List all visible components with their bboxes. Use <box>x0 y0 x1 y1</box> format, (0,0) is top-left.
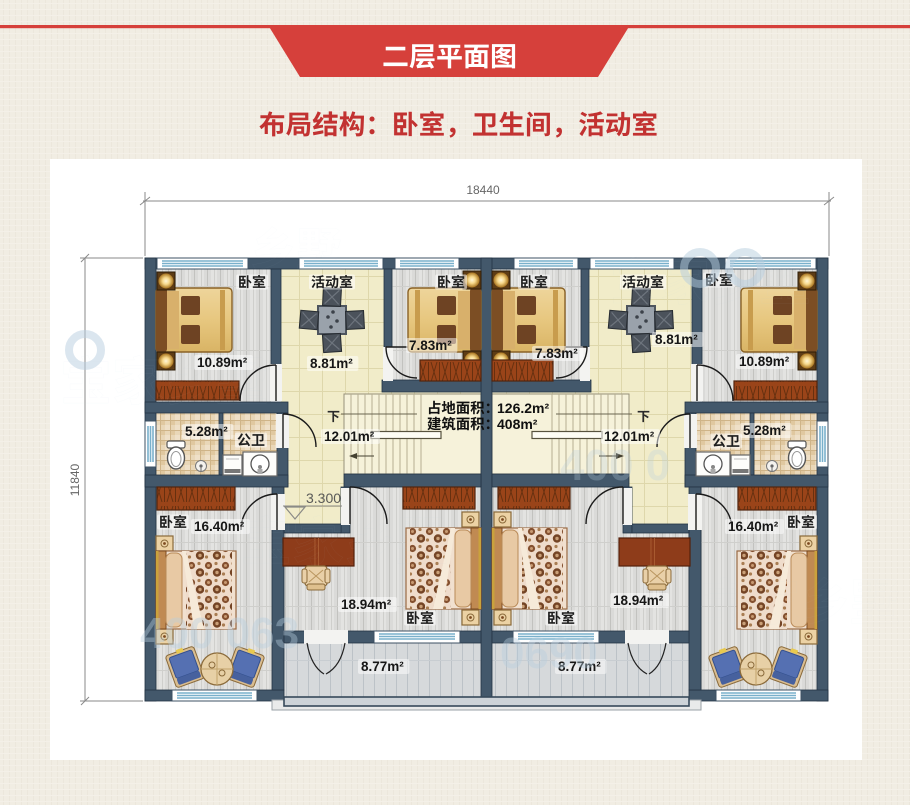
svg-text:8.81m²: 8.81m² <box>655 332 698 347</box>
svg-text:7.83m²: 7.83m² <box>409 338 452 353</box>
svg-text:0690: 0690 <box>500 629 598 678</box>
svg-text:408m²: 408m² <box>497 416 538 432</box>
svg-text:400 063: 400 063 <box>140 609 299 658</box>
svg-text:10.89m²: 10.89m² <box>197 355 248 370</box>
svg-text:5.28m²: 5.28m² <box>185 424 228 439</box>
svg-text:8.81m²: 8.81m² <box>310 356 353 371</box>
svg-text:16.40m²: 16.40m² <box>728 519 779 534</box>
svg-text:18440: 18440 <box>466 183 500 197</box>
svg-text:18.94m²: 18.94m² <box>341 597 392 612</box>
svg-text:7.83m²: 7.83m² <box>535 346 578 361</box>
svg-text:12.01m²: 12.01m² <box>324 429 375 444</box>
svg-text:8.77m²: 8.77m² <box>361 659 404 674</box>
svg-text:126.2m²: 126.2m² <box>497 400 549 416</box>
svg-text:400 0: 400 0 <box>560 441 670 490</box>
svg-text:16.40m²: 16.40m² <box>194 519 245 534</box>
svg-text:5.28m²: 5.28m² <box>743 423 786 438</box>
svg-text:10.89m²: 10.89m² <box>739 354 790 369</box>
svg-text:3.300: 3.300 <box>306 490 341 506</box>
svg-text:11840: 11840 <box>68 463 82 496</box>
svg-text:18.94m²: 18.94m² <box>613 593 664 608</box>
